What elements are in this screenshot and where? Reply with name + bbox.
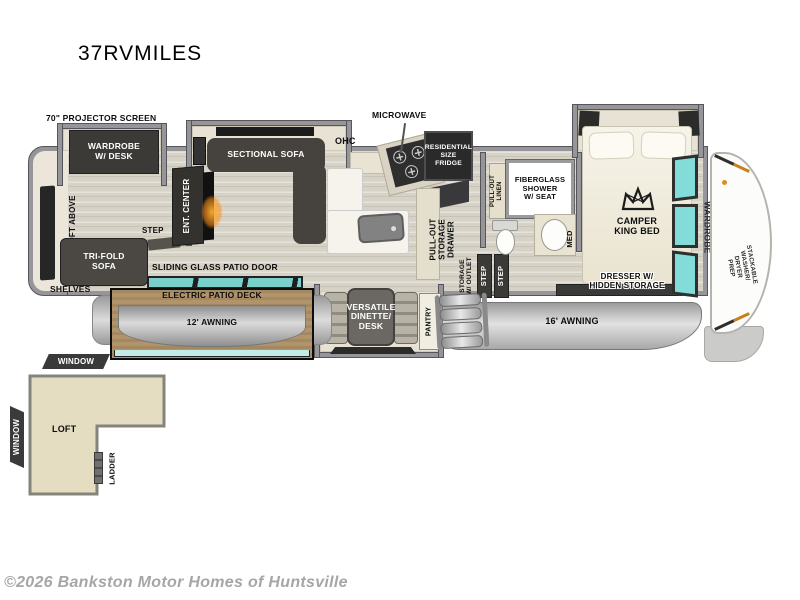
projector-screen-label: 70" PROJECTOR SCREEN bbox=[46, 114, 156, 124]
pillow-left bbox=[589, 131, 635, 160]
entry-steps bbox=[435, 291, 490, 352]
bedroom-window-3 bbox=[672, 250, 698, 297]
projector-screen-shape bbox=[40, 185, 55, 280]
vanity-sink bbox=[541, 219, 568, 251]
dinette-mat bbox=[330, 347, 416, 354]
step-label-rear: STEP bbox=[142, 226, 164, 235]
pillow-right bbox=[641, 131, 687, 160]
deck-skirt bbox=[114, 350, 310, 357]
awning-12-label: 12' AWNING bbox=[118, 318, 306, 328]
step-b-label: STEP bbox=[497, 254, 507, 298]
king-bed-label: CAMPER KING BED bbox=[592, 216, 682, 236]
fireplace-glow bbox=[198, 190, 226, 234]
step-rung bbox=[439, 307, 482, 321]
microwave-label: MICROWAVE bbox=[372, 111, 427, 121]
tri-fold-sofa: TRI-FOLD SOFA bbox=[60, 238, 148, 286]
fridge: RESIDENTIAL SIZE FRIDGE bbox=[424, 131, 473, 181]
burner-icon bbox=[404, 164, 420, 180]
step-rung bbox=[439, 293, 482, 307]
wardrobe-desk: WARDROBE W/ DESK bbox=[69, 130, 159, 174]
ent-center-label: ENT. CENTER bbox=[182, 164, 194, 248]
bedroom-window-2 bbox=[672, 204, 698, 248]
tv-strip bbox=[216, 127, 314, 136]
ladder-shape bbox=[94, 452, 103, 484]
loft-window-side-label: WINDOW bbox=[10, 406, 24, 468]
step-rung bbox=[441, 335, 484, 349]
slide-window bbox=[193, 137, 206, 165]
ohc-label: OHC bbox=[335, 136, 356, 146]
kitchen-sink bbox=[357, 212, 405, 243]
sectional-sofa-chaise bbox=[293, 164, 326, 244]
patio-deck-label: ELECTRIC PATIO DECK bbox=[118, 291, 306, 301]
watermark: ©2026 Bankston Motor Homes of Huntsville bbox=[4, 574, 348, 592]
wardrobe-slide-wall-right bbox=[161, 123, 167, 186]
med-cabinet-label: MED bbox=[566, 221, 576, 257]
loft-label: LOFT bbox=[52, 424, 76, 434]
shelves-label: SHELVES bbox=[50, 285, 90, 295]
toilet-bowl bbox=[496, 229, 515, 255]
dinette-bench-right bbox=[394, 292, 418, 344]
faucet-icon bbox=[391, 226, 396, 231]
bath-wall-left bbox=[480, 152, 486, 248]
bedroom-window-1 bbox=[672, 154, 698, 201]
crown-icon bbox=[618, 186, 658, 216]
sliding-door-label: SLIDING GLASS PATIO DOOR bbox=[152, 263, 278, 273]
pullout-storage-label: PULL-OUT STORAGE DRAWER bbox=[429, 208, 458, 272]
ladder-label: LADDER bbox=[109, 447, 118, 491]
floorplan-canvas: 37RVMILES LOFT ABOVE TRI-FOLD SOFA SHELV… bbox=[0, 0, 800, 600]
loft-window-top-label: WINDOW bbox=[42, 354, 110, 369]
dinette-table: VERSATILE DINETTE/ DESK bbox=[347, 288, 395, 346]
shower: FIBERGLASS SHOWER W/ SEAT bbox=[506, 160, 574, 218]
page-title: 37RVMILES bbox=[78, 42, 202, 66]
pullout-linen-label: PULL-OUT LINEN bbox=[490, 168, 504, 214]
step-rung bbox=[440, 321, 483, 335]
cap-marker-dot bbox=[722, 180, 727, 185]
pantry-label: PANTRY bbox=[426, 298, 435, 346]
